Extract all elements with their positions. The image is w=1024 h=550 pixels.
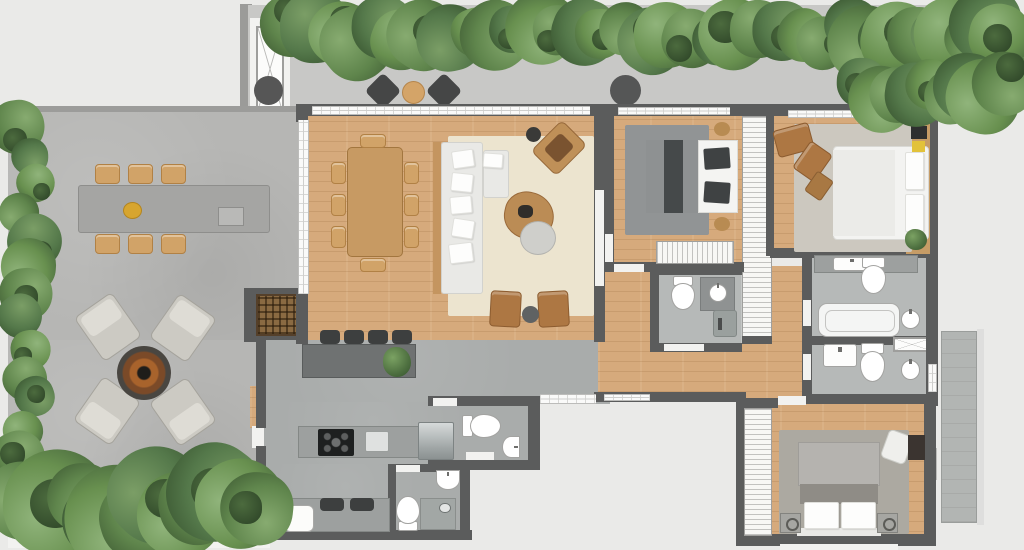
island-plant (383, 347, 411, 377)
bottombed-south-window (780, 544, 898, 550)
laundry-appliance-1 (320, 498, 344, 511)
bottombed-headboard (797, 528, 881, 536)
sofa-pillow-6 (483, 152, 504, 168)
midbed-bench (656, 241, 734, 264)
bottombed-desk (908, 435, 925, 460)
service-toilet (397, 497, 421, 531)
fridge (418, 422, 454, 460)
sofa-pillow-2 (450, 172, 474, 193)
coffee-machine (365, 431, 389, 452)
master-plant (905, 229, 927, 250)
ensuite-basin (709, 284, 727, 302)
laundry-appliance-2 (350, 498, 374, 511)
bath2-door (803, 354, 811, 380)
walkway-planter (610, 75, 641, 106)
service-bath-door (396, 465, 420, 472)
fruit-bowl (123, 202, 142, 219)
midbed-nightstand-2 (714, 217, 730, 231)
midbed-top-window (618, 107, 730, 115)
kitchen-south-window (540, 394, 596, 404)
master-bath-door (803, 300, 811, 326)
ensuite-shower-handle (718, 318, 722, 330)
master-speaker (911, 126, 927, 139)
powder-door-swing (466, 452, 494, 460)
accent-chair-1 (489, 290, 522, 328)
midbed-south-door (614, 264, 644, 272)
balcony-window-1 (928, 364, 937, 392)
powder-east-wall (528, 396, 540, 468)
bottombed-pillow-1 (804, 502, 839, 529)
bath2-basin (901, 360, 920, 380)
dining-chair-head-top (360, 134, 386, 148)
bath2-sink (823, 344, 857, 367)
powder-sink (502, 436, 520, 458)
master-note (912, 141, 925, 152)
floor-plan-canvas (0, 0, 1024, 550)
bottombed-duvet (798, 442, 880, 486)
top-hedge-foliage-accent (666, 35, 693, 62)
bottombed-duvet-fold (800, 484, 878, 504)
master-pillow-2 (905, 194, 924, 232)
midbed-pillow-2 (703, 181, 730, 204)
midbed-pillow-1 (703, 147, 730, 170)
ensuite-shower (713, 310, 737, 337)
sofa-pillow-4 (451, 217, 476, 239)
dining-chair-l3 (331, 226, 346, 248)
balcony-deck (941, 331, 977, 523)
master-duvet (833, 150, 895, 236)
master-bath-basin (901, 310, 920, 329)
bottombed-speaker-1 (780, 513, 801, 533)
living-hall-door (595, 190, 604, 286)
dining-chair-r1 (404, 162, 419, 184)
dining-table (347, 147, 403, 257)
outdoor-sink (218, 207, 244, 226)
midbed-runner (664, 140, 683, 213)
sofa-pillow-1 (451, 149, 475, 170)
outdoor-chair-6 (161, 234, 186, 254)
ensuite-toilet (670, 276, 694, 309)
ensuite-west-wall (650, 266, 659, 352)
powder-toilet (462, 414, 500, 440)
dining-chair-head-bottom (360, 258, 386, 272)
ensuite-north-wall (650, 266, 742, 275)
reading-side-table (526, 127, 541, 142)
master-bath-west-wall (802, 252, 812, 404)
living-west-wall-bottom (296, 294, 308, 344)
sofa-pillow-3 (449, 195, 472, 215)
powder-door (433, 398, 457, 406)
accent-chair-2 (537, 290, 570, 328)
sofa-pillow-5 (448, 242, 474, 265)
outdoor-chair-3 (161, 164, 186, 184)
walkway-side-table (402, 81, 425, 104)
dining-chair-r2 (404, 194, 419, 216)
master-bath-tub (818, 303, 900, 337)
accent-side-table (522, 306, 539, 323)
dining-chair-l1 (331, 162, 346, 184)
ensuite-door (664, 344, 704, 351)
bottombed-speaker-2 (877, 513, 898, 533)
grill-trellis (256, 294, 300, 336)
cooktop (318, 429, 354, 456)
top-hedge-right-foliage-accent (983, 24, 1011, 52)
midbed-nightstand-1 (714, 122, 730, 136)
top-hedge-right-foliage-accent (996, 53, 1024, 82)
bath2-toilet (858, 343, 885, 381)
outdoor-chair-4 (95, 234, 120, 254)
dining-chair-r3 (404, 226, 419, 248)
sofa-back (433, 142, 441, 294)
master-bath-toilet (859, 257, 886, 293)
outdoor-chair-5 (128, 234, 153, 254)
service-shower (420, 498, 456, 530)
fire-pit (117, 346, 171, 400)
balcony-outer-edge (977, 329, 984, 525)
entry-planter (254, 76, 283, 105)
bath2-south-wall (806, 394, 934, 404)
service-bath-east-wall (460, 464, 470, 534)
hall-south-window (604, 394, 650, 401)
master-pillow-1 (905, 152, 924, 190)
kitchen-west-wall (256, 336, 266, 428)
pouf (520, 221, 556, 255)
bar-stool-2 (344, 330, 364, 344)
coffee-table-decor (518, 205, 533, 218)
bottombed-east-wall (924, 398, 936, 540)
bar-stool-1 (320, 330, 340, 344)
bottombed-closet (744, 408, 772, 536)
living-top-window (312, 106, 590, 115)
bottombed-pillow-2 (841, 502, 876, 529)
outdoor-chair-2 (128, 164, 153, 184)
bottombed-door (778, 396, 806, 405)
bar-stool-4 (392, 330, 412, 344)
service-sink (436, 470, 460, 490)
bar-stool-3 (368, 330, 388, 344)
closet-south-wall (742, 336, 772, 344)
dining-chair-l2 (331, 194, 346, 216)
outdoor-chair-1 (95, 164, 120, 184)
left-ivy-foliage-accent (27, 385, 45, 403)
bottombed-north-wall (744, 398, 778, 408)
living-west-window (298, 120, 309, 294)
bottom-hedge-foliage-accent (229, 491, 262, 524)
